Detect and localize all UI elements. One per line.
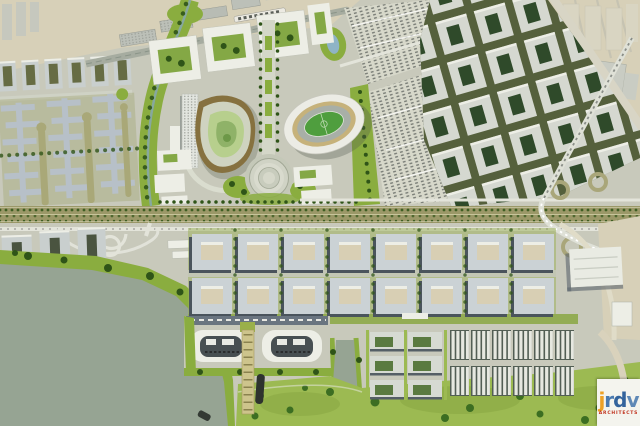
aerial-map	[0, 0, 640, 426]
central-axis-mall	[261, 20, 278, 164]
southern-block-district	[188, 228, 578, 324]
logo-letter-r: r	[604, 388, 613, 412]
logo-subtext: ARCHITECTS	[599, 411, 638, 416]
logo-letter-d: d	[613, 388, 626, 412]
masterplan-rendering: jrdv ARCHITECTS	[0, 0, 640, 426]
logo-letter-v: v	[627, 388, 639, 412]
architect-logo: jrdv ARCHITECTS	[597, 379, 640, 426]
exhibition-hall	[565, 247, 623, 292]
waterfront-crescents	[184, 316, 332, 376]
logo-word: jrdv	[598, 390, 638, 410]
